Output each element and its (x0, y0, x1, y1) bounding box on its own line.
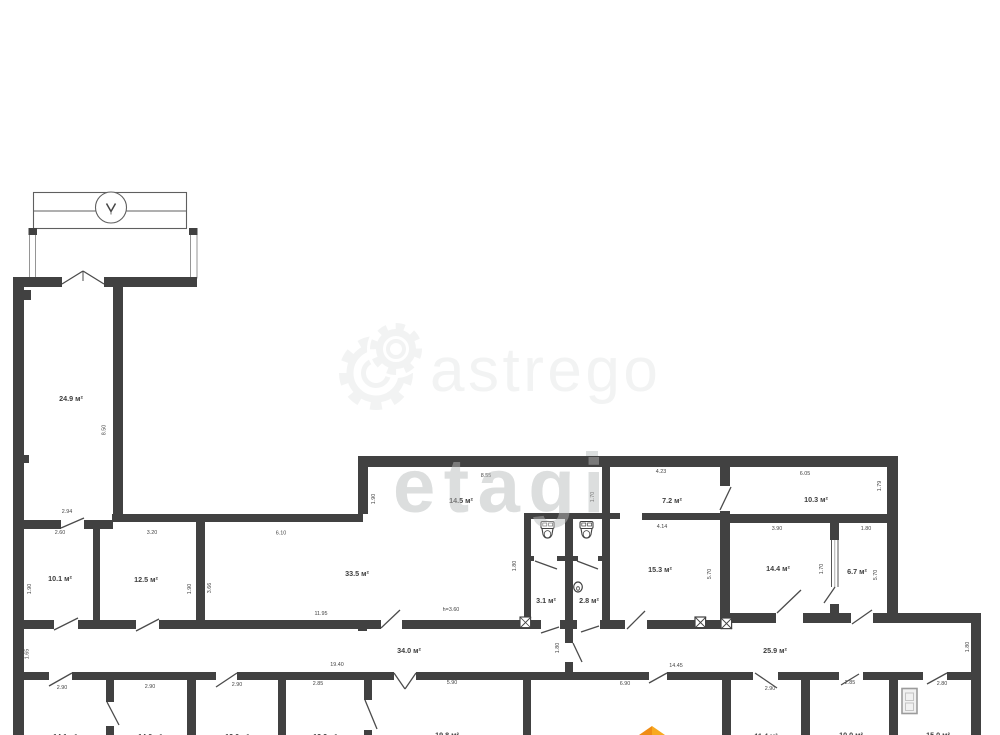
svg-text:5.70: 5.70 (873, 570, 879, 581)
svg-text:12.5 м²: 12.5 м² (134, 575, 158, 584)
svg-text:1.80: 1.80 (555, 643, 561, 654)
svg-text:6.10: 6.10 (276, 531, 287, 537)
svg-text:2.85: 2.85 (313, 681, 324, 687)
svg-text:10.3 м²: 10.3 м² (804, 495, 828, 504)
svg-text:14.4 м²: 14.4 м² (766, 564, 790, 573)
svg-text:1.90: 1.90 (27, 584, 33, 595)
svg-text:1.80: 1.80 (861, 526, 872, 532)
svg-text:25.9 м²: 25.9 м² (763, 646, 787, 655)
svg-text:2.80: 2.80 (937, 681, 948, 687)
svg-text:33.5 м²: 33.5 м² (345, 569, 369, 578)
svg-text:10.1 м²: 10.1 м² (48, 574, 72, 583)
svg-text:1.80: 1.80 (965, 642, 971, 653)
svg-text:24.9 м²: 24.9 м² (59, 394, 83, 403)
svg-text:6.05: 6.05 (800, 471, 811, 477)
svg-text:6.90: 6.90 (620, 681, 631, 687)
svg-text:1.70: 1.70 (819, 564, 825, 575)
svg-text:5.70: 5.70 (707, 569, 713, 580)
svg-text:14.45: 14.45 (669, 663, 683, 669)
svg-text:4.14: 4.14 (657, 524, 668, 530)
svg-text:11.95: 11.95 (314, 611, 327, 617)
svg-text:2.85: 2.85 (845, 680, 856, 686)
svg-text:19.8 м²: 19.8 м² (435, 731, 459, 735)
svg-text:2.94: 2.94 (62, 509, 73, 515)
svg-text:5.90: 5.90 (447, 680, 458, 686)
svg-text:1.90: 1.90 (187, 584, 193, 595)
svg-text:7.2 м²: 7.2 м² (662, 496, 682, 505)
svg-text:3.1 м²: 3.1 м² (536, 596, 556, 605)
svg-text:11.4 м²: 11.4 м² (754, 732, 778, 735)
svg-text:h=3.60: h=3.60 (443, 607, 460, 613)
svg-text:1.79: 1.79 (877, 481, 883, 492)
svg-text:10.0 м²: 10.0 м² (839, 731, 863, 735)
svg-text:etagi: etagi (393, 444, 613, 529)
svg-text:3.66: 3.66 (207, 583, 213, 594)
svg-text:34.0 м²: 34.0 м² (397, 646, 421, 655)
svg-text:4.23: 4.23 (656, 469, 667, 475)
svg-text:astrego: astrego (430, 336, 661, 405)
svg-text:19.40: 19.40 (330, 662, 344, 668)
svg-text:2.8 м²: 2.8 м² (579, 596, 599, 605)
svg-text:1.80: 1.80 (512, 561, 518, 572)
svg-text:2.60: 2.60 (55, 530, 66, 536)
svg-text:15.3 м²: 15.3 м² (648, 565, 672, 574)
svg-text:1.90: 1.90 (371, 494, 377, 505)
svg-text:2.90: 2.90 (232, 682, 243, 688)
svg-text:3.90: 3.90 (772, 526, 783, 532)
svg-text:8.50: 8.50 (102, 425, 108, 436)
svg-text:3.20: 3.20 (147, 530, 158, 536)
svg-text:6.7 м²: 6.7 м² (847, 567, 867, 576)
svg-text:1.65: 1.65 (25, 649, 31, 660)
svg-text:15.0 м²: 15.0 м² (926, 731, 950, 735)
svg-text:2.90: 2.90 (765, 686, 776, 692)
svg-text:2.90: 2.90 (145, 684, 156, 690)
svg-text:2.90: 2.90 (57, 685, 68, 691)
